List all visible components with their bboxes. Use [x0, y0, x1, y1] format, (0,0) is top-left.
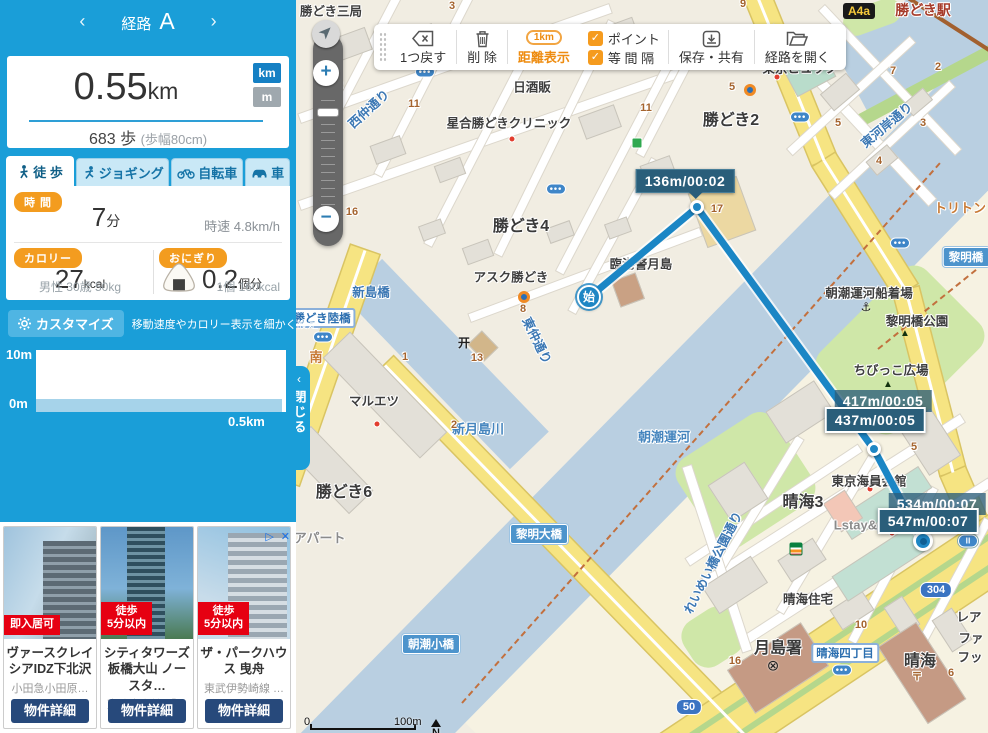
tab-bicycle[interactable]: 自転車 [171, 158, 243, 186]
building [462, 239, 494, 265]
ad-title: シティタワーズ板橋大山 ノースタ… [103, 645, 191, 694]
crossing-icon: ••• [546, 184, 566, 195]
ad-badge: 徒歩 5分以内 [198, 602, 249, 636]
kyorisoku-app: ••••••••••••••••••⊗开⚓▲▲Ⅲ勝どき三局日酒販星合勝どきクリニ… [0, 0, 988, 733]
unit-km-button[interactable]: km [253, 63, 281, 83]
map-block-number: 3 [449, 0, 455, 12]
route-title-text: 経路 [121, 16, 151, 33]
stats-panel: 時 間 7分 時速 4.8km/h カロリー 27kcal 男性 30歳 50k… [6, 186, 290, 300]
map-label-street: 東仲通り [518, 313, 557, 366]
ad-badge: 即入居可 [4, 615, 60, 635]
elevation-x-max: 0.5km [228, 414, 265, 429]
compass-button[interactable] [312, 20, 340, 48]
map-label-area: 勝どき6 [316, 478, 372, 502]
road-number-badge: 304 [920, 582, 952, 598]
ad-card[interactable]: 即入居可 ヴァースクレイシアIDZ下北沢 小田急小田原… 物件詳細 [3, 526, 97, 729]
adchoices-icon[interactable]: ▷ [265, 530, 273, 543]
station-entrance-icon [518, 291, 530, 303]
interval-checkbox-checked[interactable]: ✓ [588, 50, 603, 65]
delete-button[interactable]: 削 除 [457, 26, 507, 68]
seven-eleven-icon [790, 543, 803, 556]
park-poi-icon [632, 138, 643, 149]
ad-detail-button[interactable]: 物件詳細 [108, 699, 186, 723]
map-label-place: レア [956, 607, 981, 626]
undo-button[interactable]: 1つ戻す [390, 26, 456, 68]
speed-value: 時速 4.8km/h [204, 216, 280, 235]
unit-m-button[interactable]: m [253, 87, 281, 107]
ad-photo: 即入居可 [4, 527, 96, 639]
map-label-place: 勝どき三局 [300, 1, 362, 20]
delete-label: 削 除 [467, 51, 497, 65]
customize-row: カスタマイズ 移動速度やカロリー表示を細かく設定 [8, 310, 292, 337]
map-label-place: マルエツ [349, 391, 399, 410]
compass-arrow-icon [318, 24, 334, 45]
map-block-number: 5 [729, 81, 735, 93]
tab-walk[interactable]: 徒 歩 [6, 156, 74, 186]
route-tooltip: 136m/00:02 [636, 169, 735, 193]
exit-number-badge: A4a [843, 3, 875, 19]
ad-close-icon[interactable]: ✕ [281, 530, 290, 543]
map-label-area: 晴海3 [783, 488, 824, 512]
crossing-icon: ••• [890, 238, 910, 249]
gear-icon [18, 317, 31, 330]
distance-card: km m 0.55km 683 歩 (歩幅80cm) [7, 56, 289, 148]
map-block-number: 7 [890, 65, 896, 77]
ad-subtitle: 小田急小田原… [6, 680, 94, 696]
open-route-label: 経路を開く [765, 51, 830, 65]
car-icon [251, 167, 268, 179]
elevation-y-max: 10m [6, 347, 32, 362]
ads-panel: ▷ ✕ 即入居可 ヴァースクレイシアIDZ下北沢 小田急小田原… 物件詳細 徒歩… [0, 522, 296, 733]
compass-needle-icon [431, 714, 441, 727]
ad-title: ザ・パークハウス 曳舟 [200, 645, 288, 678]
scale-length: 100m [394, 716, 422, 728]
bicycle-icon [177, 167, 195, 179]
customize-button[interactable]: カスタマイズ [8, 310, 124, 337]
route-title: 経路A [121, 8, 174, 35]
divider [14, 242, 282, 243]
onigiri-note: 1個 160kcal [217, 278, 280, 295]
map-label-place: 星合勝どきクリニック [447, 113, 572, 132]
transport-tabs: 徒 歩 ジョギング 自転車 車 [6, 156, 290, 186]
tree-icon: ▲ [900, 329, 910, 339]
undo-label: 1つ戻す [400, 51, 446, 65]
jog-icon [82, 166, 96, 180]
open-route-button[interactable]: 経路を開く [755, 26, 840, 68]
map-label-bridge: 朝潮小橋 [402, 634, 460, 654]
route-tooltip: 547m/00:07 [878, 508, 979, 534]
customize-desc: 移動速度やカロリー表示を細かく設定 [132, 316, 319, 332]
map-label-water: 朝潮運河 [638, 427, 690, 446]
undo-icon [412, 30, 434, 50]
tab-walk-label: 徒 歩 [33, 162, 63, 181]
map-block-number: 11 [640, 102, 652, 114]
map-block-number: 4 [876, 155, 882, 167]
map-label-street: 新島橋 [352, 282, 390, 301]
building [370, 135, 407, 165]
ad-card[interactable]: 徒歩 5分以内 シティタワーズ板橋大山 ノースタ… 東武東上線 「… 物件詳細 [100, 526, 194, 729]
time-value: 7分 [36, 202, 176, 233]
map-label-bridge: 黎明大橋 [510, 524, 568, 544]
elevation-chart [36, 350, 286, 412]
station-entrance-icon [744, 84, 756, 96]
map-label-place: 黎明橋公園 [886, 311, 949, 330]
zoom-slider-handle[interactable] [317, 108, 339, 117]
trash-icon [475, 30, 490, 51]
crossing-icon: ••• [832, 665, 852, 676]
building [604, 216, 632, 239]
zoom-slider-ticks [321, 100, 335, 216]
point-label: ポイント [608, 29, 660, 48]
next-route-button[interactable]: › [211, 11, 217, 32]
map-toolbar: 1つ戻す 削 除 1km 距離表示 ✓ ポイント ✓ [374, 24, 846, 70]
building [545, 220, 575, 244]
route-header: ‹ 経路A › [0, 0, 296, 42]
map-block-number: 16 [346, 206, 358, 218]
onigiri-icon [162, 262, 196, 298]
ad-detail-button[interactable]: 物件詳細 [205, 699, 283, 723]
elevation-y-min: 0m [9, 396, 28, 411]
poi-red-dot-icon [509, 136, 516, 143]
map-label-place: 朝潮運河船着場 [825, 283, 913, 302]
time-number: 7 [92, 202, 106, 232]
walk-icon [17, 165, 30, 179]
map-block-number: 5 [835, 117, 841, 129]
map-block-number: 5 [911, 441, 917, 453]
ad-card[interactable]: 徒歩 5分以内 ザ・パークハウス 曳舟 東武伊勢崎線 … 物件詳細 [197, 526, 291, 729]
divider [29, 120, 263, 122]
building [418, 218, 446, 241]
map-label-station: 勝どき駅 [895, 0, 951, 20]
map-block-number: 9 [740, 0, 746, 10]
crossing-icon: ••• [790, 112, 810, 123]
route-tooltip: 437m/00:05 [825, 407, 926, 433]
route-start-marker[interactable]: 始 [577, 285, 601, 309]
map-block-number: 1 [402, 351, 408, 363]
compass-n-label: N [432, 727, 440, 733]
map-block-number: 17 [711, 203, 723, 215]
road-number-badge: 50 [676, 699, 702, 715]
interval-checkbox-row[interactable]: ✓ 等 間 隔 [588, 48, 660, 67]
map-label-num: 〒 [912, 668, 923, 684]
pier-anchor-icon: ⚓ [861, 301, 872, 313]
distance-display-button[interactable]: 1km 距離表示 [508, 26, 580, 68]
map-label-place: フッ [957, 647, 982, 666]
distance-unit: km [148, 78, 179, 104]
divider [153, 250, 154, 294]
save-share-label: 保存・共有 [679, 51, 744, 65]
zoom-in-button[interactable]: + [313, 60, 339, 86]
map-block-number: 10 [855, 619, 867, 631]
tree-icon: ▲ [883, 380, 893, 390]
steps-note: (歩幅80cm) [141, 132, 207, 147]
poi-red-dot-icon [374, 421, 381, 428]
map-label-cross: 晴海四丁目 [811, 643, 879, 663]
point-checkbox-checked[interactable]: ✓ [588, 31, 603, 46]
adchoices-controls: ▷ ✕ [265, 530, 290, 543]
tab-car[interactable]: 車 [245, 158, 290, 186]
customize-label: カスタマイズ [36, 314, 114, 333]
map-label-area: 勝どき4 [493, 212, 549, 236]
prev-route-button[interactable]: ‹ [79, 11, 85, 32]
map-label-place: ちびっこ広場 [853, 360, 928, 379]
map-label-orange: トリトン [934, 198, 986, 217]
map-label-orange: 南 [309, 347, 322, 366]
steps-value: 683 歩 (歩幅80cm) [7, 125, 289, 149]
map-label-place: アスク勝どき [474, 267, 549, 286]
ad-title: ヴァースクレイシアIDZ下北沢 [6, 645, 94, 678]
tab-jogging-label: ジョギング [99, 163, 164, 182]
tab-bicycle-label: 自転車 [198, 163, 237, 182]
public-bath-icon: Ⅲ [958, 535, 978, 548]
save-icon [702, 30, 721, 51]
route-waypoint[interactable] [867, 442, 881, 456]
zoom-out-button[interactable]: − [313, 206, 339, 232]
map-block-number: 2 [935, 61, 941, 73]
distance-number: 0.55 [74, 66, 148, 108]
route-end-point[interactable] [913, 531, 933, 551]
map-label-place: 晴海住宅 [783, 589, 833, 608]
steps-number: 683 歩 [89, 131, 136, 148]
map-label-water: 新月島川 [452, 419, 504, 438]
map-label-bridge: 黎明橋 [943, 247, 988, 267]
route-letter: A [159, 8, 174, 34]
north-compass: N [431, 714, 441, 733]
save-share-button[interactable]: 保存・共有 [669, 26, 754, 68]
ad-badge: 徒歩 5分以内 [101, 602, 152, 636]
calorie-note: 男性 30歳 50kg [12, 278, 148, 295]
map-label-area: 勝どき2 [703, 106, 759, 130]
map-block-number: 13 [471, 352, 483, 364]
map-label-area: 月島署 [754, 634, 802, 658]
tab-car-label: 車 [271, 163, 284, 182]
crossing-icon: ••• [313, 332, 333, 343]
shrine-icon: 开 [458, 337, 470, 349]
distance-display-label: 距離表示 [518, 51, 570, 65]
ad-photo: 徒歩 5分以内 [198, 527, 290, 639]
scale-bar [310, 728, 416, 730]
elevation-profile [36, 399, 282, 412]
police-station-icon: ⊗ [767, 659, 780, 674]
map-block-number: 2 [451, 419, 457, 431]
tab-jogging[interactable]: ジョギング [76, 158, 169, 186]
map-block-number: 3 [920, 117, 926, 129]
folder-open-icon [786, 30, 808, 50]
map-block-number: 11 [408, 98, 420, 110]
map-label-place: ファ [958, 628, 983, 647]
ad-photo: 徒歩 5分以内 [101, 527, 193, 639]
distance-value: 0.55km [7, 66, 245, 109]
map-block-number: 16 [729, 655, 741, 667]
map-block-number: 8 [520, 303, 526, 315]
point-checkbox-row[interactable]: ✓ ポイント [588, 29, 660, 48]
distance-1km-icon: 1km [526, 30, 562, 45]
ad-subtitle: 東武伊勢崎線 … [200, 680, 288, 696]
ad-detail-button[interactable]: 物件詳細 [11, 699, 89, 723]
time-unit: 分 [106, 213, 120, 229]
interval-label: 等 間 隔 [608, 48, 654, 67]
map-block-number: 6 [948, 667, 954, 679]
map-label-place: 日酒販 [513, 77, 551, 96]
toolbar-drag-handle[interactable] [379, 32, 388, 62]
